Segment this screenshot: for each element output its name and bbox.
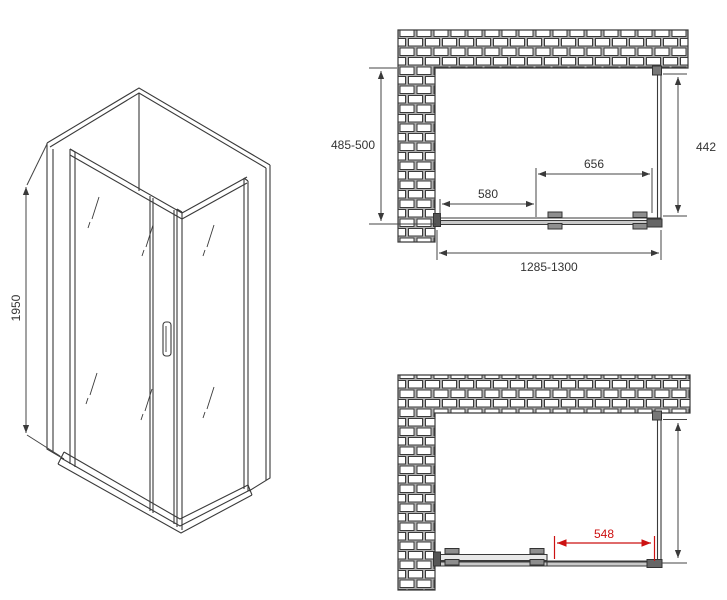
iso-view-drawing: 1950: [0, 0, 310, 600]
back-wall-panels: [47, 88, 270, 491]
door-dimension-label: 656: [584, 157, 604, 171]
wall-profile-icon: [434, 214, 441, 227]
iso-height-dimension: 1950: [9, 144, 60, 456]
opening-dimension-label: 548: [594, 527, 614, 541]
opening-dimension-red: 548: [555, 527, 655, 561]
wall-bracket-icon: [653, 411, 662, 420]
enclosure-frame: [70, 149, 248, 530]
corner-bracket-icon: [647, 219, 662, 227]
shower-tray: [58, 452, 252, 533]
width-dimension-label: 1285-1300: [520, 260, 578, 274]
door-rail-bottom-view: [434, 549, 663, 568]
side-panel-top-view: [653, 66, 662, 226]
bottom-view-drawing: 548: [310, 300, 727, 600]
technical-drawing-canvas: 1950: [0, 0, 727, 600]
door-handle: [163, 322, 171, 356]
bottom-view-dimensions: 548: [555, 420, 688, 564]
door-rail-top-view: [434, 212, 663, 229]
height-dimension-label: 1950: [9, 294, 23, 321]
side-panel-dimension-label: 442: [696, 140, 716, 154]
top-view-dimensions: 485-500 442 656 580 1285-1300: [331, 68, 716, 274]
fixed-panel-dimension-label: 580: [478, 187, 498, 201]
depth-dimension-label: 485-500: [331, 138, 375, 152]
top-view-drawing: 485-500 442 656 580 1285-1300: [310, 0, 727, 300]
wall-bracket-icon: [653, 66, 662, 75]
brick-wall-top-view: [398, 30, 688, 242]
wall-profile-icon: [434, 552, 441, 566]
side-panel-bottom-view: [653, 411, 662, 561]
